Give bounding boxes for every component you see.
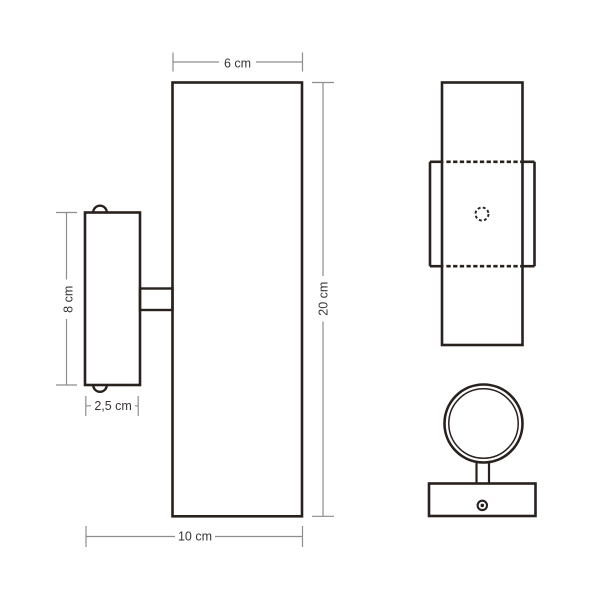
svg-text:6 cm: 6 cm — [224, 57, 251, 71]
svg-text:8 cm: 8 cm — [61, 286, 75, 313]
svg-text:2,5 cm: 2,5 cm — [94, 399, 132, 413]
svg-text:10 cm: 10 cm — [178, 530, 212, 544]
svg-text:20 cm: 20 cm — [317, 282, 331, 316]
